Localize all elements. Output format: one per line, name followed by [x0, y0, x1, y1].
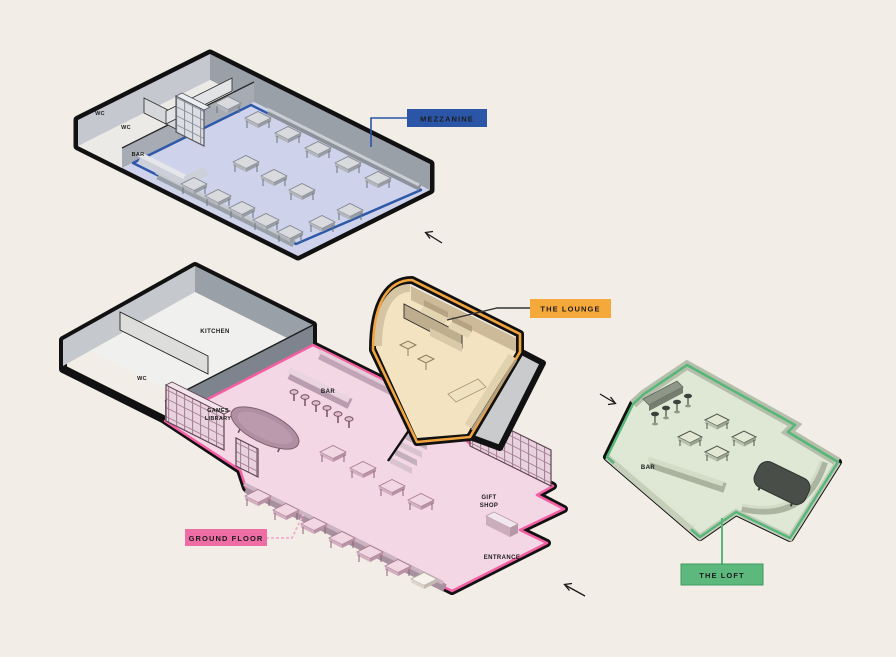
entrance-label: ENTRANCE [484, 555, 521, 561]
ground-wc-label: WC [137, 376, 147, 382]
games-library-label-1: GAMES [207, 408, 229, 414]
loft-badge-label: THE LOFT [699, 571, 744, 580]
ground-floor-badge-label: GROUND FLOOR [189, 534, 264, 543]
gift-shop-label-1: GIFT [481, 495, 496, 501]
mezzanine-wc2-label: WC [121, 125, 131, 131]
mezzanine-wc1-label: WC [95, 111, 105, 117]
mezzanine-badge-label: MEZZANINE [420, 115, 474, 124]
loft-bar-label: BAR [641, 465, 655, 471]
floorplan-svg: WC WC BAR [0, 0, 896, 657]
lounge-badge-label: THE LOUNGE [540, 305, 600, 314]
gift-shop-label-2: SHOP [480, 503, 499, 509]
games-library-label-2: LIBRARY [205, 416, 231, 422]
ground-bar-label: BAR [321, 389, 335, 395]
floorplan-diagram: WC WC BAR [0, 0, 896, 657]
kitchen-label: KITCHEN [200, 329, 229, 335]
mezzanine-bar-label: BAR [132, 152, 145, 158]
